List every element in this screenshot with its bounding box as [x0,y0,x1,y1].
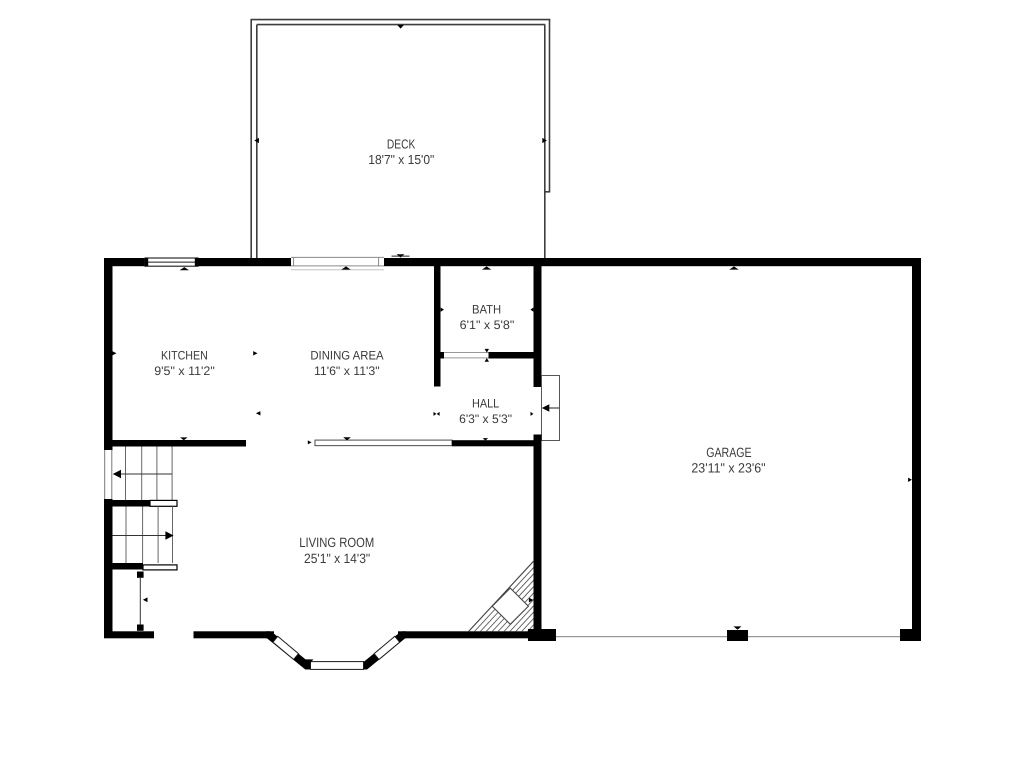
svg-text:9'5" x 11'2": 9'5" x 11'2" [154,364,215,378]
svg-text:DINING AREA: DINING AREA [310,349,384,363]
svg-text:KITCHEN: KITCHEN [161,349,208,363]
svg-text:GARAGE: GARAGE [706,445,751,460]
svg-text:HALL: HALL [472,397,499,411]
svg-text:11'6" x 11'3": 11'6" x 11'3" [314,364,380,378]
svg-text:LIVING ROOM: LIVING ROOM [299,535,374,550]
svg-text:6'3" x 5'3": 6'3" x 5'3" [459,412,512,426]
svg-text:BATH: BATH [472,302,501,316]
svg-text:6'1" x 5'8": 6'1" x 5'8" [460,318,515,332]
svg-text:23'11" x 23'6": 23'11" x 23'6" [691,460,765,475]
svg-text:DECK: DECK [387,137,416,152]
svg-text:18'7" x 15'0": 18'7" x 15'0" [368,152,434,167]
svg-text:25'1" x 14'3": 25'1" x 14'3" [304,551,370,566]
